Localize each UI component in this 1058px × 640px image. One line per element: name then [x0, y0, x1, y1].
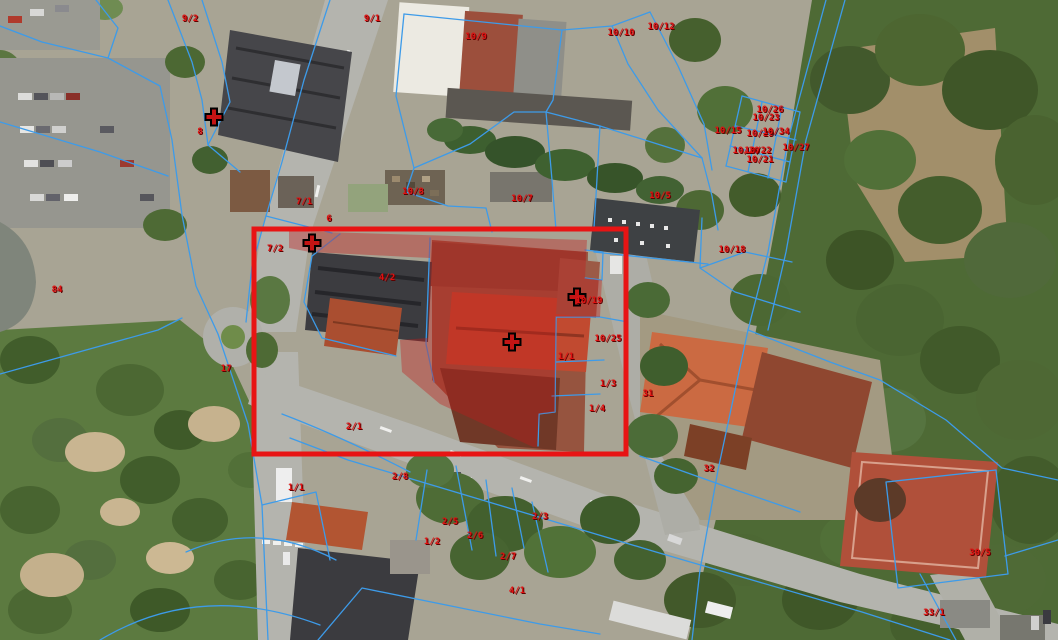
highlight-overlay-polygon [289, 231, 602, 447]
map-viewport[interactable]: 9/29/110/910/1010/12810/810/710/510/1510… [0, 0, 1058, 640]
cadastral-overlay [0, 0, 1058, 640]
